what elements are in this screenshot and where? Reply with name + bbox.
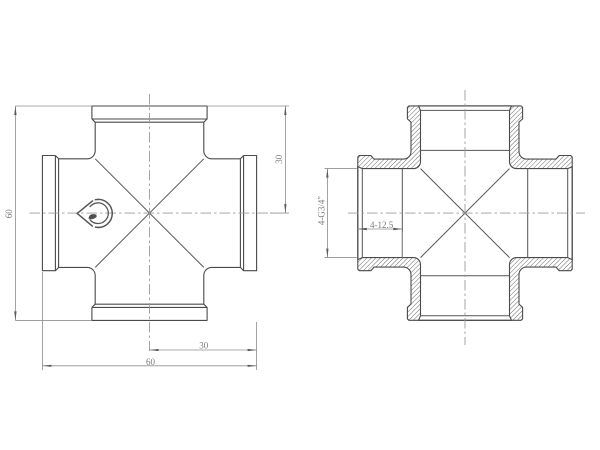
svg-text:4-G3/4″: 4-G3/4″ bbox=[317, 196, 327, 225]
svg-text:30: 30 bbox=[199, 341, 209, 351]
svg-text:60: 60 bbox=[146, 357, 156, 367]
svg-text:30: 30 bbox=[274, 154, 284, 164]
svg-text:4-12.5: 4-12.5 bbox=[370, 220, 394, 230]
svg-text:60: 60 bbox=[4, 209, 14, 219]
